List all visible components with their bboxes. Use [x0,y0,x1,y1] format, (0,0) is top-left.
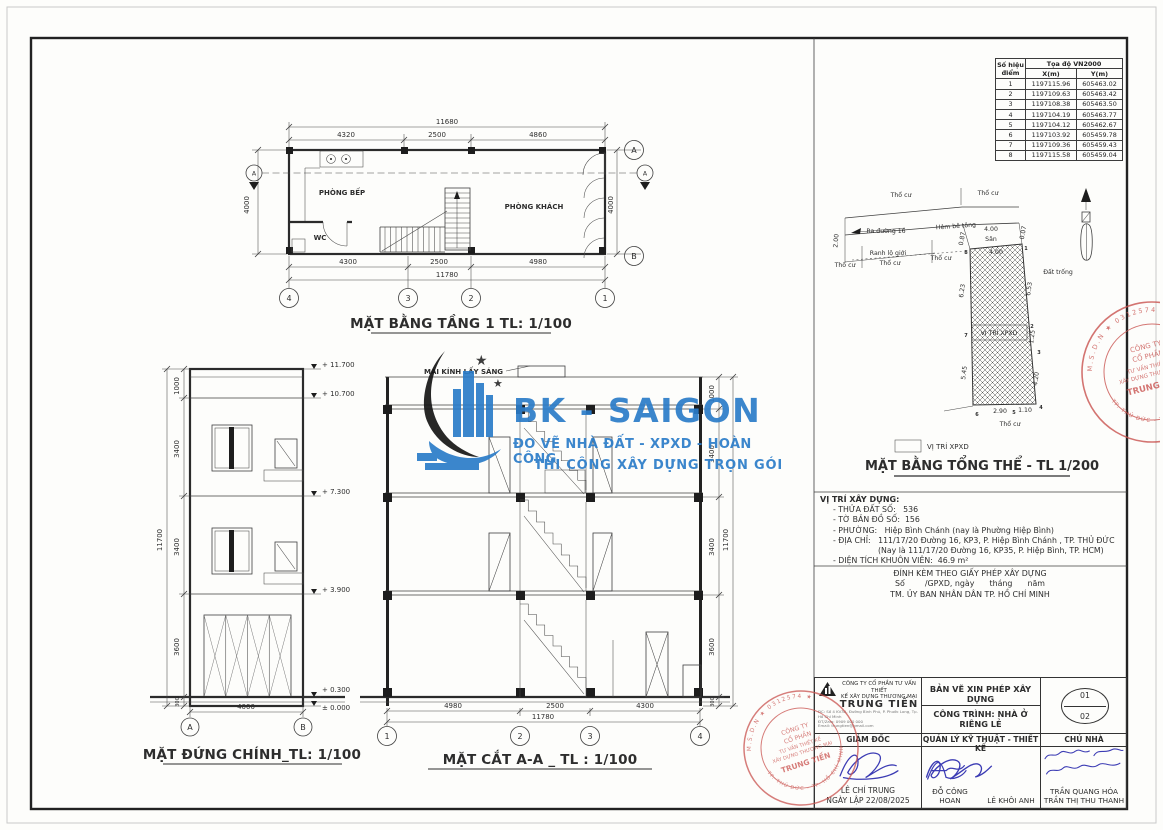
dim-label: 4000 [243,196,251,214]
point-label: 2 [1030,324,1034,330]
table-row: 51197104.12605462.67 [996,120,1123,130]
dim-label: 4300 [636,702,654,710]
sheet-number-ellipse: 01 02 [1061,688,1109,724]
coord-col-y: Y(m) [1076,69,1122,79]
dim-label: 6.53 [1025,281,1034,296]
alley-label: Hẻm bê tông [936,221,977,232]
dim-label: 11780 [436,271,458,279]
elevation-view: 1000 3400 3400 3600 300 11700 + 11.700 +… [143,361,361,764]
section-marker-label: A [643,171,648,178]
point-label: 1 [1024,246,1028,252]
checker-name: LÊ KHÔI ANH [982,796,1040,805]
title-block: CÔNG TY CỔ PHẦN TƯ VẤN THIẾT KẾ XÂY DỰNG… [814,677,1127,809]
plot-label: VỊ TRÍ XPXD [981,328,1018,337]
logo-tagline: THI CÔNG XÂY DỰNG TRỌN GÓI [534,458,783,473]
dim-label: 300 [175,697,181,707]
coordinate-table: Số hiệu điểm Tọa độ VN2000 X(m) Y(m) 111… [995,58,1123,161]
dim-label: 4.20 [1032,371,1041,386]
legend-label: VỊ TRÍ XPXD [927,442,969,451]
permit-line: Số /GPXD, ngày tháng năm [818,579,1122,589]
dim-label: 3400 [173,538,181,556]
lot-label: Thổ cư [930,253,953,262]
location-heading: VỊ TRÍ XÂY DỰNG: [820,495,1122,505]
grid-bubble-4: 4 [286,294,291,303]
north-arrow-icon [1081,188,1093,260]
doc-type: BẢN VẼ XIN PHÉP XÂY DỰNG [921,684,1040,706]
designer-name: ĐỖ CÔNG HOAN [921,787,979,805]
doc-type-cell: BẢN VẼ XIN PHÉP XÂY DỰNG CÔNG TRÌNH: NHÀ… [921,678,1040,733]
dim-label: 4.00 [989,249,1003,256]
grid-bubble-1: 1 [602,294,607,303]
sheet-total: 02 [1062,712,1108,721]
floor-plan: 11680 4320 2500 4860 4300 2500 4980 1178… [243,118,653,333]
entry-door-arc [583,153,605,175]
dim-label: 0.07 [1019,225,1028,240]
role-director: GIÁM ĐỐC [815,733,921,746]
dim-label: 11680 [436,118,458,126]
dim-label: 6.23 [958,283,967,298]
dim-label: 2.00 [832,234,840,248]
vacant-label: Đất trống [1043,268,1073,276]
project-name: CÔNG TRÌNH: NHÀ Ở RIÊNG LẺ [921,709,1040,729]
owner-name: TRẦN THỊ THU THANH [1040,796,1128,805]
dim-label: 3600 [173,638,181,656]
dim-label: 4300 [339,258,357,266]
company-cell: CÔNG TY CỔ PHẦN TƯ VẤN THIẾT KẾ XÂY DỰNG… [815,678,921,733]
yard-label: Sân [985,235,997,243]
dim-label: 3400 [173,440,181,458]
table-row: 71197109.36605459.43 [996,140,1123,150]
drawing-sheet: 11680 4320 2500 4860 4300 2500 4980 1178… [0,0,1163,830]
role-design: QUẢN LÝ KỸ THUẬT - THIẾT KẾ [921,733,1040,746]
grid-bubble-b: B [631,252,637,261]
dim-label: 2500 [430,258,448,266]
level-label: ± 0.000 [322,704,350,712]
section-title: MẶT CẮT A-A _ TL : 1/100 [443,749,638,768]
design-sign-cell: ĐỖ CÔNG HOAN LÊ KHÔI ANH [921,746,1040,808]
company-line: CÔNG TY CỔ PHẦN TƯ VẤN THIẾT [837,681,921,694]
point-label: 5 [1012,410,1016,416]
svg-text:★: ★ [475,353,488,369]
logo-name: BK - SAIGON [513,391,761,430]
floor-plan-title: MẶT BẰNG TẦNG 1 TL: 1/100 [350,313,572,332]
owner-sign-cell: TRẦN QUANG HÓA TRẦN THỊ THU THANH [1040,746,1128,808]
permit-line: TM. ỦY BAN NHÂN DÂN TP. HỒ CHÍ MINH [818,590,1122,600]
level-markers: + 11.700 + 10.700 + 7.300 + 3.900 + 0.30… [303,361,355,712]
owner-name: TRẦN QUANG HÓA [1040,787,1128,796]
grid-bubble-a: A [187,723,193,732]
point-label: 4 [1039,405,1043,411]
bk-saigon-logo-icon: ★ ★ [417,349,509,477]
lot-label: Thổ cư [834,260,857,269]
coord-col-x: X(m) [1026,69,1077,79]
room-label-wc: WC [314,234,327,242]
dim-label: 11700 [722,529,730,551]
dim-label: 11780 [532,713,554,721]
level-label: + 7.300 [322,488,350,496]
coord-col-group: Tọa độ VN2000 [1026,59,1123,69]
table-row: 61197103.92605459.78 [996,130,1123,140]
dim-label: 4000 [237,703,255,711]
permit-line: ĐÍNH KÈM THEO GIẤY PHÉP XÂY DỰNG [818,569,1122,579]
point-label: 6 [975,412,979,418]
grid-bubble-4: 4 [697,732,702,741]
dim-label: 3600 [708,638,716,656]
legend-swatch [895,440,921,452]
dim-label: 3400 [708,538,716,556]
table-row: 41197104.19605463.77 [996,109,1123,119]
road-label: Ra đường 16 [866,227,905,235]
dim-label: 2.90 [993,408,1007,415]
director-name: LÊ CHÍ TRUNG [815,786,921,795]
dim-label: 4320 [337,131,355,139]
dim-label: 2500 [546,702,564,710]
dim-label: 2500 [428,131,446,139]
permit-note: ĐÍNH KÈM THEO GIẤY PHÉP XÂY DỰNG Số /GPX… [818,569,1122,600]
dim-label: 4000 [607,196,615,214]
dim-label: 300 [710,697,716,707]
company-address: Email: trungtien@gmail.com [818,724,919,729]
sheet-no: 01 [1062,691,1108,700]
sheet-number-cell: 01 02 [1040,678,1128,733]
dim-label: 0.87 [958,231,967,246]
dim-label: 4860 [529,131,547,139]
elevation-title: MẶT ĐỨNG CHÍNH_TL: 1/100 [143,745,361,763]
level-label: + 11.700 [322,361,355,369]
section-marker-label: A [252,171,257,178]
level-label: + 0.300 [322,686,350,694]
location-item: - TỜ BẢN ĐỒ SỐ: 156 [833,515,1122,525]
plot-polygon [970,244,1036,405]
lot-label: Thổ cư [890,190,913,199]
table-row: 81197115.58605459.04 [996,150,1123,160]
room-label-kitchen: PHÒNG BẾP [319,187,365,197]
grid-bubble-3: 3 [405,294,410,303]
grid-bubble-2: 2 [517,732,522,741]
point-label: 7 [964,333,968,339]
location-item: (Nay là 111/17/20 Đường 16, KP35, P. Hiệ… [878,546,1122,556]
table-row: 31197108.38605463.50 [996,99,1123,109]
site-plan: VỊ TRÍ XPXD Thổ cư Thổ cư Thổ cư Thổ cư … [832,188,1099,476]
dim-label: 1.25 [1028,329,1037,344]
grid-bubble-b: B [300,723,306,732]
lot-label: Thổ cư [999,419,1022,428]
lot-label: Thổ cư [879,258,902,267]
owner-signatures [1042,746,1126,782]
level-label: + 10.700 [322,390,355,398]
toilet-icon [292,239,305,252]
room-label-living: PHÒNG KHÁCH [505,202,564,211]
setback-label: Ranh lộ giới [870,249,907,257]
level-label: + 3.900 [322,586,350,594]
point-label: 3 [1037,350,1041,356]
dim-label: 1.10 [1018,407,1032,414]
section-markers: A A [246,165,653,190]
director-signature [829,747,909,781]
location-item: - ĐỊA CHỈ: 111/17/20 Đường 16, KP3, P. H… [833,536,1122,546]
point-label: 8 [964,250,968,256]
grid-bubble-1: 1 [384,732,389,741]
svg-text:★: ★ [493,377,503,390]
table-row: 11197115.96605463.02 [996,79,1123,89]
location-item: - THỬA ĐẤT SỐ: 536 [833,505,1122,515]
wc-door-arc [323,222,347,246]
dim-label: 1000 [173,377,181,395]
company-name: TRUNG TIẾN [837,702,921,709]
coord-col-point: Số hiệu [997,61,1024,69]
company-logo-icon [819,682,836,698]
location-item: - PHƯỜNG: Hiệp Bình Chánh (nay là Phường… [833,526,1122,536]
dim-label: 4980 [444,702,462,710]
grid-bubble-a: A [631,146,637,155]
grid-bubble-2: 2 [468,294,473,303]
site-plan-title: MẶT BẰNG TỔNG THỂ - TL 1/200 [865,456,1099,474]
dim-label: 4.00 [984,226,998,233]
dim-label: 4980 [529,258,547,266]
dim-label: 5.45 [960,365,969,380]
location-item: - DIỆN TÍCH KHUÔN VIÊN: 46.9 m² [833,556,1122,566]
folding-door-arcs [584,178,604,258]
director-sign-cell: LÊ CHÍ TRUNG NGÀY LẬP 22/08/2025 [815,746,921,808]
grid-bubble-3: 3 [587,732,592,741]
lot-label: Thổ cư [977,188,1000,197]
dim-label: 11700 [156,529,164,551]
role-owner: CHỦ NHÀ [1040,733,1128,746]
grid-bubbles: 4 3 2 1 A B [280,141,644,308]
bk-saigon-watermark: ★ ★ BK - SAIGON ĐO VẼ NHÀ ĐẤT - XPXD - H… [417,349,789,479]
date-created: NGÀY LẬP 22/08/2025 [815,796,921,805]
checker-signature [921,752,971,786]
table-row: 21197109.63605463.42 [996,89,1123,99]
location-info: VỊ TRÍ XÂY DỰNG: - THỬA ĐẤT SỐ: 536 - TỜ… [820,495,1122,566]
